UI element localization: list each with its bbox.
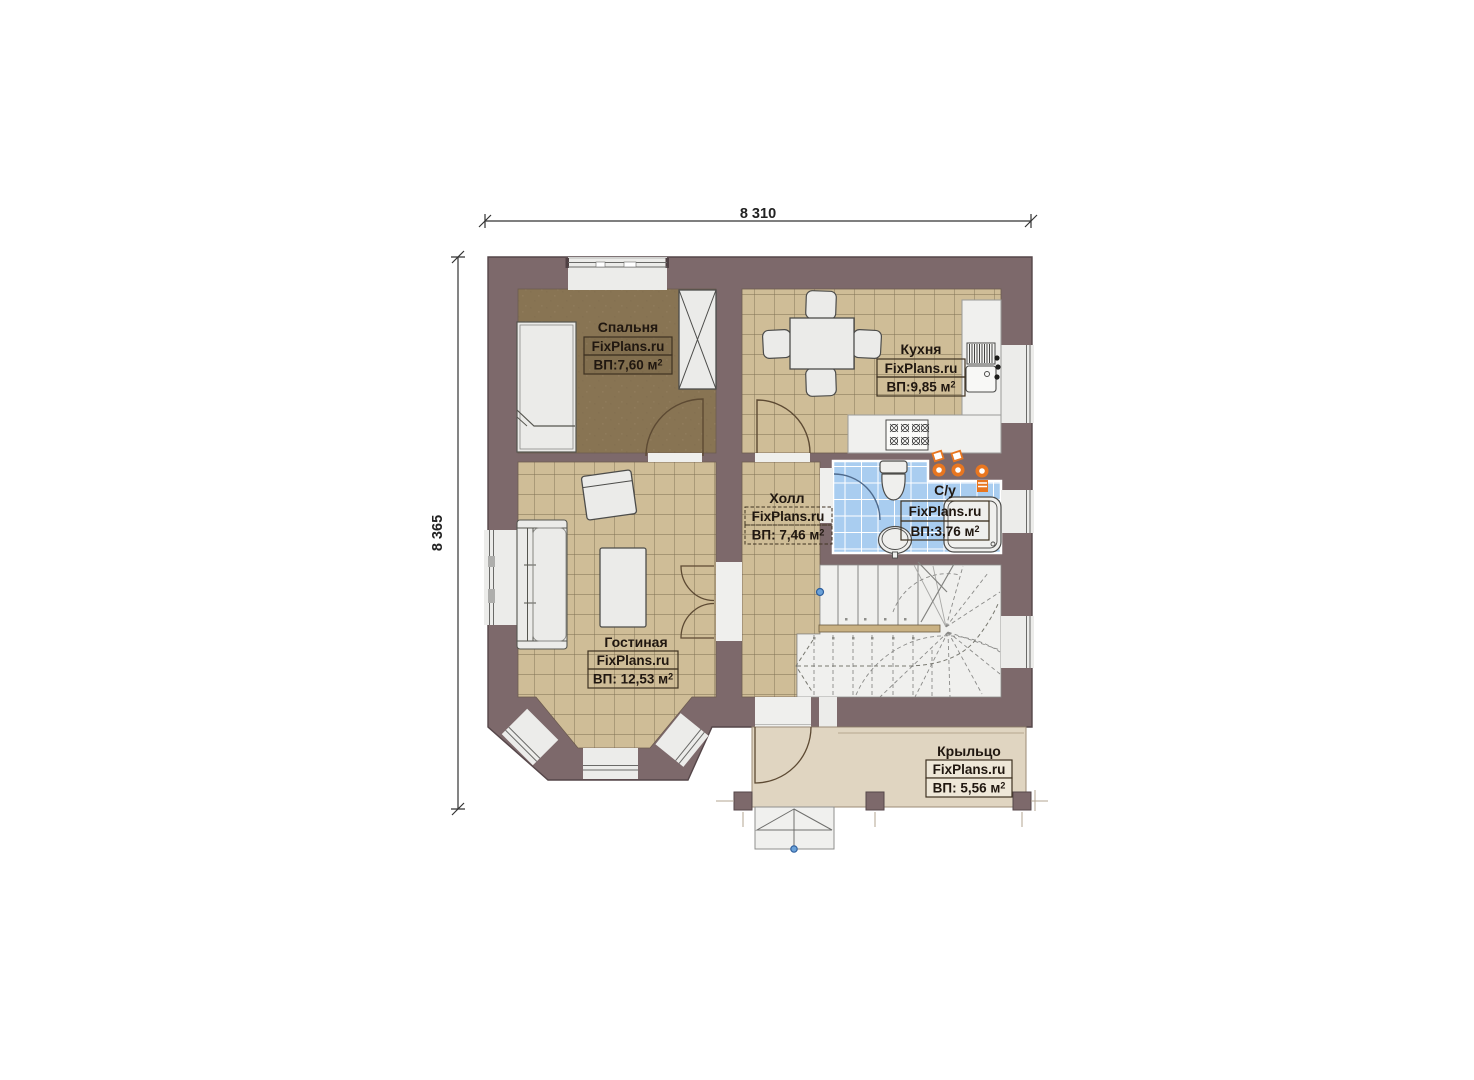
svg-text:8 365: 8 365 [430,515,446,551]
svg-text:Гостиная: Гостиная [604,634,667,650]
svg-text:FixPlans.ru: FixPlans.ru [885,361,958,376]
svg-text:FixPlans.ru: FixPlans.ru [933,762,1006,777]
svg-text:ВП: 7,46 м2: ВП: 7,46 м2 [752,528,825,543]
svg-text:Кухня: Кухня [901,341,942,357]
svg-text:FixPlans.ru: FixPlans.ru [592,339,665,354]
svg-text:Спальня: Спальня [598,319,658,335]
svg-text:ВП:7,60 м2: ВП:7,60 м2 [594,358,663,373]
svg-text:ВП: 12,53 м2: ВП: 12,53 м2 [593,672,673,687]
svg-text:FixPlans.ru: FixPlans.ru [752,509,825,524]
svg-text:FixPlans.ru: FixPlans.ru [597,653,670,668]
svg-text:ВП:3,76 м2: ВП:3,76 м2 [911,524,980,539]
svg-text:ВП:9,85 м2: ВП:9,85 м2 [887,380,956,395]
svg-text:ВП: 5,56 м2: ВП: 5,56 м2 [933,781,1006,796]
svg-text:FixPlans.ru: FixPlans.ru [909,504,982,519]
svg-text:С/у: С/у [934,482,956,498]
svg-text:Холл: Холл [769,490,804,506]
svg-text:8 310: 8 310 [740,206,776,222]
svg-text:Крыльцо: Крыльцо [937,743,1001,759]
